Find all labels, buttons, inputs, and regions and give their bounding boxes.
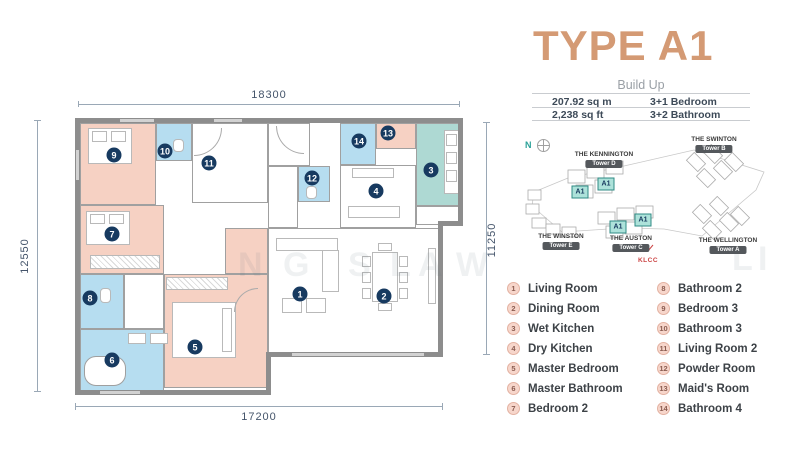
tower-pill-auston: Tower C	[612, 244, 649, 252]
legend-label: Bathroom 3	[678, 323, 742, 335]
legend-num: 9	[657, 302, 670, 315]
dimension-tick	[75, 403, 76, 410]
room-badge-1: 1	[293, 287, 308, 302]
room-badge-13: 13	[381, 126, 396, 141]
tower-name-wellington: THE WELLINGTON	[699, 237, 757, 244]
build-up-area-sqft: 2,238 sq ft	[552, 109, 603, 121]
dimension-tick	[483, 122, 490, 123]
unit-a1-marker: A1	[635, 214, 652, 227]
legend-label: Bathroom 2	[678, 283, 742, 295]
window	[214, 119, 242, 122]
vanity-sink	[128, 333, 146, 344]
kitchen-island	[348, 206, 400, 218]
window	[100, 391, 140, 394]
kitchen-appliance	[446, 170, 457, 182]
build-up-area-sqm: 207.92 sq m	[552, 96, 612, 108]
room-badge-3: 3	[424, 163, 439, 178]
room-badge-11: 11	[202, 156, 217, 171]
watermark-letter: A	[418, 246, 443, 285]
dimension-tick	[459, 101, 460, 107]
room-badge-10: 10	[158, 144, 173, 159]
legend-label: Maid's Room	[678, 383, 749, 395]
legend-num: 11	[657, 342, 670, 355]
pillow	[92, 131, 107, 142]
legend-label: Powder Room	[678, 363, 755, 375]
build-up-bathrooms: 3+2 Bathroom	[650, 109, 720, 121]
pillow	[222, 308, 232, 352]
tower-name-kennington: THE KENNINGTON	[575, 151, 633, 158]
legend-num: 5	[507, 362, 520, 375]
legend-label: Wet Kitchen	[528, 323, 594, 335]
compass-icon	[537, 139, 550, 152]
dimension-top-label: 18300	[78, 89, 460, 101]
build-up-bedrooms: 3+1 Bedroom	[650, 96, 717, 108]
legend-num: 8	[657, 282, 670, 295]
room-badge-14: 14	[352, 134, 367, 149]
legend-label: Master Bedroom	[528, 363, 619, 375]
kitchen-counter	[352, 168, 394, 178]
tower-pill-wellington: Tower A	[709, 246, 746, 254]
window	[76, 150, 79, 180]
watermark-letter: G	[283, 246, 309, 285]
unit-a1-marker: A1	[598, 178, 615, 191]
klcc-label: KLCC	[638, 257, 658, 264]
tower-pill-swinton: Tower B	[695, 145, 732, 153]
legend-num: 7	[507, 402, 520, 415]
wardrobe	[90, 255, 160, 269]
legend-label: Living Room	[528, 283, 598, 295]
legend-label: Master Bathroom	[528, 383, 623, 395]
dining-chair	[378, 303, 392, 311]
legend-num: 6	[507, 382, 520, 395]
dimension-line-bottom	[75, 406, 443, 407]
site-map	[524, 132, 796, 284]
pillow	[111, 131, 126, 142]
build-up-heading: Build Up	[532, 78, 750, 92]
legend-label: Dining Room	[528, 303, 600, 315]
legend-label: Bedroom 2	[528, 403, 588, 415]
kitchen-appliance	[446, 152, 457, 164]
watermark-letter: L	[390, 246, 411, 285]
unit-a1-marker: A1	[610, 221, 627, 234]
room-badge-4: 4	[369, 184, 384, 199]
divider	[532, 93, 750, 94]
room-badge-12: 12	[305, 171, 320, 186]
watermark-letter: W	[456, 246, 488, 285]
legend-num: 4	[507, 342, 520, 355]
dimension-left-label: 12550	[19, 238, 31, 274]
room-hallway	[268, 166, 298, 228]
room-badge-6: 6	[105, 353, 120, 368]
wall	[458, 118, 463, 226]
floor-plan-page: 1 2 3 4 5 6 7 8 9 10 11 12 13 14 18300 1…	[0, 0, 800, 450]
legend-num: 3	[507, 322, 520, 335]
dimension-tick	[78, 101, 79, 107]
dimension-tick	[442, 403, 443, 410]
dimension-tick	[483, 354, 490, 355]
legend-num: 2	[507, 302, 520, 315]
watermark-letter: S	[348, 246, 371, 285]
legend-label: Bathroom 4	[678, 403, 742, 415]
wall	[438, 221, 443, 357]
compass-north-label: N	[525, 140, 532, 150]
legend-num: 12	[657, 362, 670, 375]
wall	[266, 352, 271, 395]
dimension-bottom-label: 17200	[75, 411, 443, 423]
toilet	[100, 288, 111, 303]
dining-chair	[362, 288, 371, 299]
legend-num: 13	[657, 382, 670, 395]
legend-num: 1	[507, 282, 520, 295]
toilet	[173, 139, 184, 152]
legend-label: Dry Kitchen	[528, 343, 593, 355]
window	[120, 119, 154, 122]
tower-name-winston: THE WINSTON	[538, 233, 583, 240]
room-badge-7: 7	[105, 227, 120, 242]
room-corridor	[124, 274, 164, 329]
legend-num: 14	[657, 402, 670, 415]
sofa-seat	[322, 250, 339, 292]
tower-pill-kennington: Tower D	[585, 160, 622, 168]
legend-num: 10	[657, 322, 670, 335]
legend-label: Living Room 2	[678, 343, 757, 355]
vanity-sink	[150, 333, 168, 344]
watermark-letter: I	[758, 240, 767, 279]
pillow	[90, 214, 105, 224]
page-title: TYPE A1	[533, 25, 714, 67]
legend-label: Bedroom 3	[678, 303, 738, 315]
tower-pill-winston: Tower E	[543, 242, 580, 250]
room-badge-9: 9	[107, 148, 122, 163]
dimension-tick	[34, 391, 41, 392]
tower-name-swinton: THE SWINTON	[691, 136, 736, 143]
balcony-door	[292, 353, 424, 356]
room-badge-8: 8	[83, 291, 98, 306]
dining-chair	[399, 288, 408, 299]
wardrobe	[166, 277, 228, 290]
tower-name-auston: THE AUSTON	[610, 235, 652, 242]
watermark-letter: N	[238, 246, 263, 285]
dimension-line-top	[78, 104, 460, 105]
toilet	[306, 186, 317, 199]
unit-a1-marker: A1	[572, 186, 589, 199]
room-badge-5: 5	[188, 340, 203, 355]
room-badge-2: 2	[377, 289, 392, 304]
ottoman	[306, 298, 326, 313]
dimension-line-left	[37, 120, 38, 392]
pillow	[109, 214, 124, 224]
kitchen-appliance	[446, 134, 457, 146]
dimension-tick	[34, 120, 41, 121]
